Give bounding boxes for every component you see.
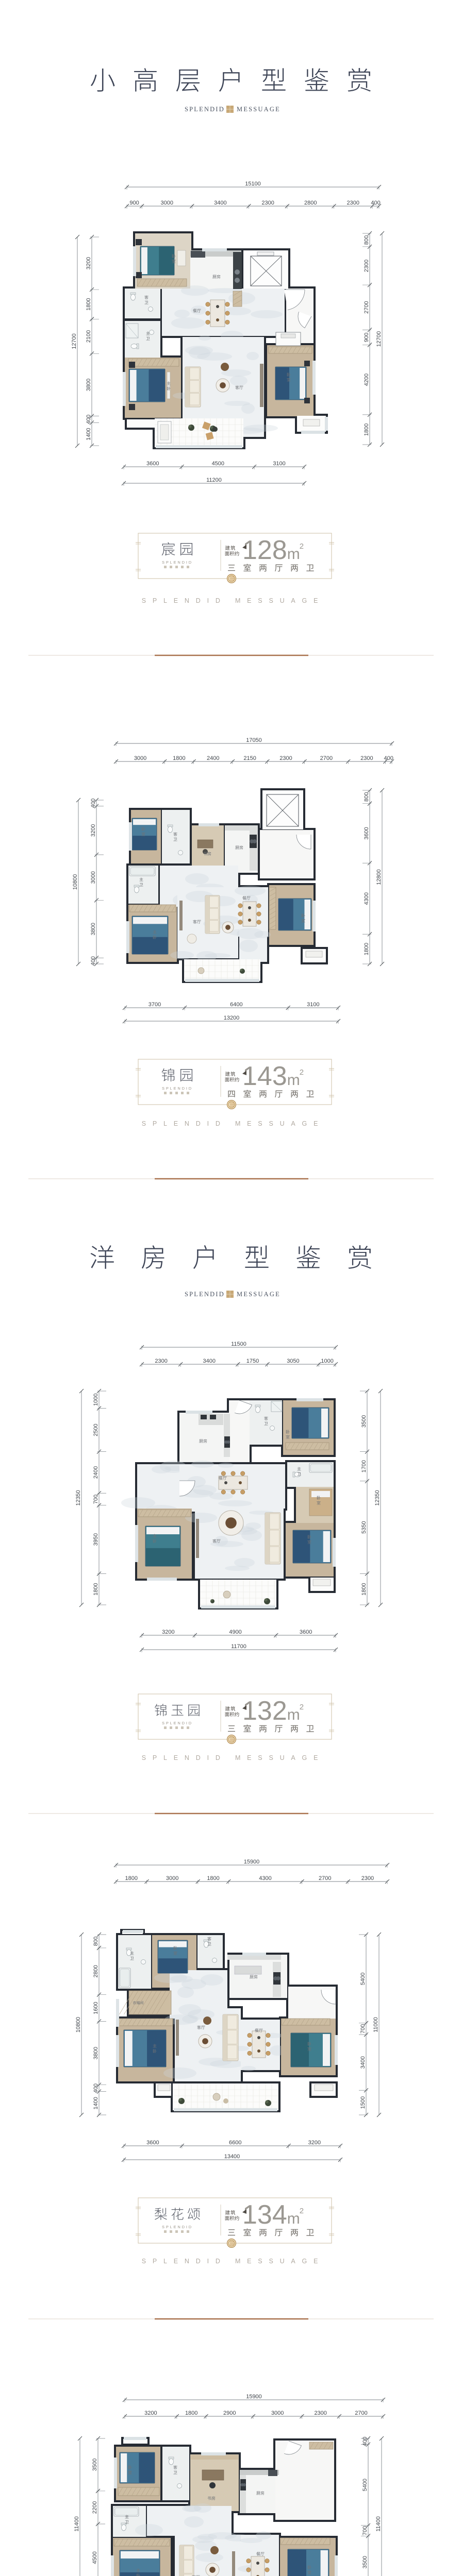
svg-text:餐厅: 餐厅	[256, 2551, 265, 2557]
svg-text:客厅: 客厅	[193, 919, 201, 925]
svg-text:两: 两	[290, 1722, 299, 1734]
svg-text:700: 700	[362, 2526, 368, 2535]
svg-text:室: 室	[287, 377, 291, 383]
svg-text:型: 型	[244, 1238, 270, 1275]
svg-text:客厅: 客厅	[235, 385, 243, 391]
svg-text:2400: 2400	[207, 755, 219, 761]
svg-text:两: 两	[259, 1087, 267, 1099]
svg-text:2700: 2700	[364, 301, 370, 313]
svg-text:2800: 2800	[304, 200, 317, 206]
svg-text:卫: 卫	[306, 1087, 314, 1099]
svg-text:面积约: 面积约	[225, 2214, 240, 2222]
svg-text:1800: 1800	[93, 1583, 99, 1596]
svg-text:户: 户	[192, 1238, 218, 1275]
svg-text:锦: 锦	[161, 1064, 175, 1085]
svg-text:3200: 3200	[308, 2140, 321, 2146]
svg-text:卫: 卫	[144, 300, 148, 306]
svg-text:2700: 2700	[355, 2410, 367, 2416]
svg-text:面积约: 面积约	[225, 1076, 240, 1083]
svg-text:4900: 4900	[229, 1629, 241, 1635]
svg-text:小: 小	[90, 60, 115, 97]
svg-text:园: 园	[179, 1064, 193, 1085]
svg-text:3600: 3600	[364, 827, 370, 839]
svg-text:洋: 洋	[89, 1238, 115, 1275]
svg-text:400: 400	[93, 2083, 99, 2093]
svg-text:13200: 13200	[224, 1015, 240, 1021]
svg-text:SPLENDID: SPLENDID	[162, 2225, 193, 2229]
svg-text:1800: 1800	[125, 1875, 138, 1882]
svg-text:卫: 卫	[306, 1722, 314, 1734]
svg-text:2: 2	[300, 2207, 304, 2215]
svg-text:m: m	[287, 546, 300, 563]
svg-text:700: 700	[360, 2024, 366, 2033]
svg-text:11500: 11500	[231, 1341, 246, 1347]
svg-text:3800: 3800	[93, 2047, 99, 2059]
svg-text:1750: 1750	[246, 1358, 259, 1364]
svg-text:3950: 3950	[93, 1533, 99, 1546]
svg-text:800: 800	[364, 235, 370, 245]
svg-text:卫: 卫	[264, 1421, 268, 1427]
svg-text:3400: 3400	[203, 1358, 216, 1364]
svg-text:800: 800	[93, 1937, 99, 1946]
svg-text:两: 两	[290, 2226, 299, 2238]
svg-text:1700: 1700	[361, 1460, 367, 1472]
svg-text:鉴: 鉴	[295, 1238, 321, 1275]
svg-text:两: 两	[259, 561, 267, 573]
svg-text:型: 型	[261, 60, 287, 97]
svg-text:SPLENDID MESSUAGE: SPLENDID MESSUAGE	[142, 1120, 324, 1127]
svg-text:2300: 2300	[361, 1875, 374, 1882]
svg-text:面积约: 面积约	[225, 550, 240, 557]
svg-text:1800: 1800	[173, 755, 185, 761]
svg-text:书房: 书房	[207, 2496, 216, 2501]
svg-text:花: 花	[171, 2204, 184, 2223]
svg-text:MESSUAGE: MESSUAGE	[237, 106, 280, 113]
svg-text:400: 400	[362, 2437, 368, 2446]
svg-text:3500: 3500	[362, 2556, 368, 2568]
svg-text:面积约: 面积约	[225, 1710, 240, 1718]
svg-text:1000: 1000	[93, 1394, 99, 1406]
svg-text:400: 400	[371, 200, 380, 206]
svg-text:4300: 4300	[364, 892, 370, 905]
svg-text:6600: 6600	[229, 2140, 241, 2146]
svg-text:SPLENDID: SPLENDID	[162, 1086, 193, 1091]
svg-text:4300: 4300	[259, 1875, 271, 1882]
svg-text:m: m	[287, 2210, 300, 2227]
svg-text:宸: 宸	[161, 538, 175, 559]
svg-text:1800: 1800	[361, 1583, 367, 1596]
svg-text:11000: 11000	[373, 2017, 379, 2032]
svg-text:室: 室	[286, 1434, 290, 1440]
svg-text:12350: 12350	[374, 1490, 381, 1506]
svg-text:12700: 12700	[71, 333, 77, 349]
svg-text:1400: 1400	[93, 2097, 99, 2109]
svg-text:3000: 3000	[166, 1875, 178, 1882]
svg-text:卫: 卫	[173, 837, 177, 842]
svg-text:3500: 3500	[92, 2459, 98, 2471]
svg-text:400: 400	[86, 415, 92, 424]
svg-text:室: 室	[141, 832, 145, 837]
svg-text:SPLENDID MESSUAGE: SPLENDID MESSUAGE	[142, 1754, 324, 1761]
svg-text:2300: 2300	[155, 1358, 167, 1364]
svg-text:2700: 2700	[320, 755, 333, 761]
svg-text:4500: 4500	[212, 461, 224, 467]
svg-text:卫: 卫	[207, 1941, 211, 1947]
svg-text:玉: 玉	[171, 1700, 184, 1719]
svg-text:厨房: 厨房	[250, 1974, 258, 1980]
svg-text:厨房: 厨房	[199, 1438, 207, 1444]
svg-text:1000: 1000	[321, 1358, 333, 1364]
svg-text:1500: 1500	[360, 2096, 366, 2109]
svg-text:2300: 2300	[261, 200, 274, 206]
svg-text:MESSUAGE: MESSUAGE	[237, 1291, 280, 1298]
svg-text:客厅: 客厅	[197, 2025, 205, 2030]
svg-text:园: 园	[187, 1700, 201, 1719]
svg-text:2500: 2500	[93, 1423, 99, 1436]
svg-text:2300: 2300	[360, 755, 373, 761]
svg-text:11400: 11400	[375, 2516, 382, 2532]
svg-text:室: 室	[307, 2570, 311, 2575]
svg-text:SPLENDID MESSUAGE: SPLENDID MESSUAGE	[142, 597, 324, 604]
svg-text:2150: 2150	[243, 755, 256, 761]
svg-text:卫: 卫	[306, 561, 314, 573]
svg-text:1800: 1800	[86, 298, 92, 311]
svg-text:锦: 锦	[154, 1700, 168, 1719]
svg-text:3500: 3500	[361, 1415, 367, 1428]
svg-text:2100: 2100	[86, 330, 92, 343]
svg-text:m: m	[287, 1706, 300, 1723]
svg-text:17050: 17050	[246, 737, 262, 743]
svg-text:2200: 2200	[92, 2501, 98, 2514]
svg-text:厅: 厅	[274, 1722, 283, 1734]
svg-text:1400: 1400	[86, 428, 92, 440]
svg-text:三: 三	[227, 2226, 236, 2238]
svg-text:餐厅: 餐厅	[219, 1476, 227, 1481]
svg-text:梨: 梨	[154, 2204, 168, 2223]
svg-text:1800: 1800	[364, 943, 370, 955]
svg-text:12700: 12700	[376, 331, 382, 347]
svg-text:SPLENDID MESSUAGE: SPLENDID MESSUAGE	[142, 2258, 324, 2265]
svg-text:房: 房	[141, 1238, 167, 1275]
svg-text:室: 室	[128, 2470, 132, 2476]
svg-text:2300: 2300	[364, 260, 370, 272]
svg-text:3200: 3200	[86, 257, 92, 269]
svg-text:卧: 卧	[153, 1538, 157, 1544]
svg-text:颂: 颂	[187, 2204, 201, 2223]
svg-text:卧: 卧	[153, 935, 157, 940]
svg-text:卫: 卫	[130, 1956, 134, 1961]
svg-text:5400: 5400	[362, 2479, 368, 2491]
svg-text:餐厅: 餐厅	[255, 2028, 263, 2033]
svg-text:3000: 3000	[160, 200, 173, 206]
svg-text:厨房: 厨房	[256, 2490, 265, 2496]
svg-text:3600: 3600	[300, 1629, 312, 1635]
svg-text:户: 户	[218, 60, 244, 97]
svg-text:两: 两	[290, 1087, 299, 1099]
svg-text:400: 400	[90, 956, 96, 965]
svg-text:3700: 3700	[148, 1002, 161, 1008]
svg-text:15100: 15100	[245, 181, 261, 187]
svg-text:室: 室	[243, 1087, 251, 1099]
svg-text:3200: 3200	[162, 1629, 174, 1635]
svg-text:10800: 10800	[72, 874, 78, 890]
svg-text:400: 400	[384, 755, 393, 761]
svg-text:卫: 卫	[146, 336, 150, 342]
svg-text:卧: 卧	[167, 386, 171, 392]
svg-text:m: m	[287, 1072, 300, 1089]
svg-text:鉴: 鉴	[304, 60, 329, 97]
svg-text:SPLENDID: SPLENDID	[185, 106, 225, 113]
svg-text:3000: 3000	[90, 871, 96, 884]
svg-text:2: 2	[300, 1703, 304, 1711]
svg-text:2800: 2800	[93, 1965, 99, 1977]
svg-text:4200: 4200	[364, 374, 370, 386]
svg-text:3800: 3800	[86, 379, 92, 391]
svg-text:衣帽间: 衣帽间	[133, 2001, 144, 2006]
svg-text:餐厅: 餐厅	[193, 308, 201, 314]
svg-text:厅: 厅	[274, 2226, 283, 2238]
svg-text:1800: 1800	[185, 2410, 197, 2416]
svg-text:3400: 3400	[360, 2056, 366, 2069]
svg-text:卫: 卫	[297, 1471, 301, 1477]
svg-text:室: 室	[301, 918, 305, 924]
svg-text:2900: 2900	[223, 2410, 236, 2416]
svg-text:室: 室	[307, 1539, 311, 1545]
svg-text:园: 园	[179, 538, 193, 559]
svg-text:10800: 10800	[75, 2017, 81, 2033]
svg-text:餐厅: 餐厅	[242, 895, 251, 901]
svg-text:2300: 2300	[279, 755, 292, 761]
svg-text:SPLENDID: SPLENDID	[162, 560, 193, 565]
svg-text:室: 室	[243, 561, 251, 573]
svg-text:3600: 3600	[146, 2140, 159, 2146]
svg-text:400: 400	[90, 799, 96, 808]
svg-text:2300: 2300	[314, 2410, 326, 2416]
svg-text:3200: 3200	[90, 824, 96, 837]
svg-text:3800: 3800	[90, 923, 96, 935]
svg-text:SPLENDID: SPLENDID	[162, 1721, 193, 1725]
svg-text:SPLENDID: SPLENDID	[185, 1291, 225, 1298]
svg-text:卫: 卫	[139, 882, 143, 888]
svg-text:900: 900	[364, 333, 370, 342]
svg-text:厅: 厅	[274, 1087, 283, 1099]
svg-text:2300: 2300	[347, 200, 359, 206]
svg-text:6400: 6400	[230, 1002, 242, 1008]
svg-text:3400: 3400	[214, 200, 226, 206]
svg-text:2400: 2400	[93, 1466, 99, 1479]
svg-text:室: 室	[317, 1500, 321, 1506]
svg-text:4500: 4500	[92, 2551, 98, 2564]
svg-text:卫: 卫	[173, 2470, 177, 2476]
svg-text:11200: 11200	[206, 477, 222, 483]
svg-text:700: 700	[93, 1495, 99, 1504]
svg-text:3600: 3600	[146, 461, 159, 467]
svg-text:2: 2	[300, 542, 304, 551]
svg-text:卫: 卫	[306, 2226, 314, 2238]
svg-text:3050: 3050	[287, 1358, 299, 1364]
svg-text:三: 三	[227, 1722, 236, 1734]
svg-text:800: 800	[364, 792, 370, 802]
svg-text:11400: 11400	[74, 2516, 80, 2532]
svg-text:三: 三	[227, 561, 236, 573]
svg-text:厨房: 厨房	[212, 274, 221, 280]
svg-text:书房: 书房	[203, 851, 211, 857]
svg-text:四: 四	[227, 1087, 236, 1099]
svg-text:卫: 卫	[125, 2519, 129, 2525]
svg-text:客厅: 客厅	[212, 1538, 221, 1544]
svg-text:12800: 12800	[376, 869, 382, 885]
svg-text:900: 900	[129, 200, 139, 206]
svg-text:5350: 5350	[361, 1521, 367, 1533]
svg-text:13400: 13400	[224, 2154, 240, 2160]
svg-text:室: 室	[172, 259, 176, 264]
svg-text:赏: 赏	[347, 1238, 373, 1275]
svg-text:15900: 15900	[246, 2394, 262, 2400]
svg-text:3000: 3000	[271, 2410, 284, 2416]
svg-text:1600: 1600	[93, 2002, 99, 2014]
svg-text:卧: 卧	[136, 2573, 140, 2576]
svg-text:2: 2	[300, 1068, 304, 1077]
svg-text:赏: 赏	[346, 60, 372, 97]
svg-text:15900: 15900	[244, 1859, 260, 1865]
svg-text:3100: 3100	[273, 461, 285, 467]
svg-text:厨房: 厨房	[235, 845, 243, 851]
svg-text:高: 高	[133, 60, 158, 97]
svg-text:室: 室	[173, 1951, 177, 1956]
svg-text:3100: 3100	[307, 1002, 319, 1008]
svg-text:3000: 3000	[134, 755, 146, 761]
svg-text:11700: 11700	[231, 1643, 246, 1650]
svg-text:室: 室	[243, 2226, 251, 2238]
svg-text:5400: 5400	[360, 1973, 366, 1985]
svg-text:两: 两	[290, 561, 299, 573]
svg-text:3200: 3200	[144, 2410, 157, 2416]
svg-text:卧: 卧	[153, 2048, 157, 2054]
svg-text:两: 两	[259, 1722, 267, 1734]
svg-text:2700: 2700	[319, 1875, 331, 1882]
svg-text:室: 室	[243, 1722, 251, 1734]
svg-text:层: 层	[175, 60, 201, 97]
svg-text:1800: 1800	[207, 1875, 219, 1882]
svg-text:1800: 1800	[364, 423, 370, 436]
svg-text:12350: 12350	[75, 1490, 81, 1506]
svg-text:两: 两	[259, 2226, 267, 2238]
svg-text:室: 室	[307, 2046, 311, 2052]
svg-text:厅: 厅	[274, 561, 283, 573]
